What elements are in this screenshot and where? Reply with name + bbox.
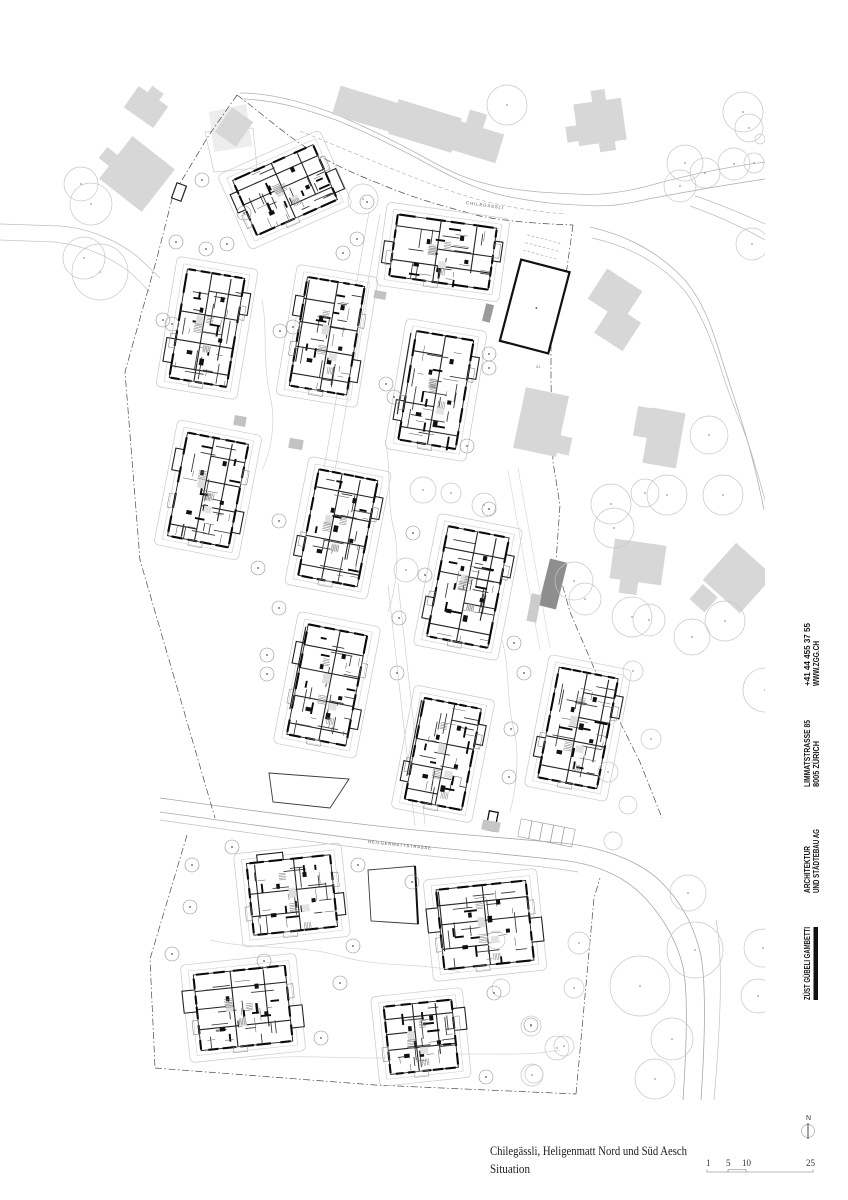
svg-text:WWW.ZGG.CH: WWW.ZGG.CH xyxy=(811,641,821,686)
svg-text:UND STÄDTEBAU AG: UND STÄDTEBAU AG xyxy=(811,829,821,893)
svg-text:Situation: Situation xyxy=(490,1162,531,1176)
svg-text:N: N xyxy=(806,1115,811,1122)
svg-text:Chilegässli, Heligenmatt Nord: Chilegässli, Heligenmatt Nord und Süd Ae… xyxy=(490,1144,688,1158)
svg-text:1: 1 xyxy=(706,1158,711,1168)
svg-text:10: 10 xyxy=(742,1158,752,1168)
svg-text:5: 5 xyxy=(726,1158,731,1168)
svg-text:8005 ZÜRICH: 8005 ZÜRICH xyxy=(811,741,821,787)
svg-text:ZÜST GÜBELI GAMBETTI: ZÜST GÜBELI GAMBETTI xyxy=(802,927,812,1000)
svg-text:01: 01 xyxy=(536,364,541,369)
svg-text:25: 25 xyxy=(806,1158,816,1168)
svg-text:HEILGENMATTSTRASSE: HEILGENMATTSTRASSE xyxy=(368,839,432,851)
